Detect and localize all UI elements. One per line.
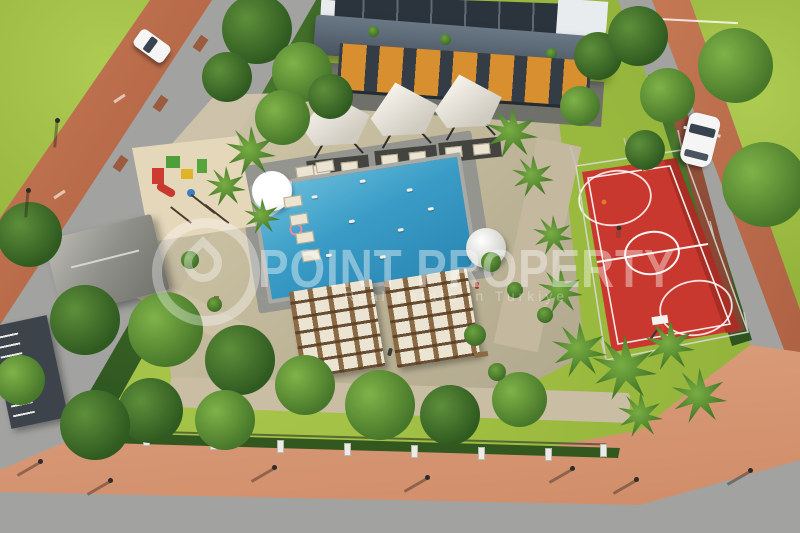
- swimmer: [428, 207, 434, 211]
- tree: [345, 370, 415, 440]
- basketball-ball: [602, 200, 607, 205]
- bush: [488, 363, 506, 381]
- fence-gate-post: [478, 447, 485, 460]
- swimmer: [398, 228, 404, 232]
- swimmer: [359, 179, 365, 183]
- car-mirror: [716, 134, 721, 138]
- playground-equipment-yellow: [181, 169, 193, 179]
- tree: [195, 390, 255, 450]
- watermark-subtitle: Real Estate in Turkiye: [344, 288, 568, 304]
- bush: [464, 324, 486, 346]
- tree: [60, 390, 130, 460]
- tree: [308, 74, 353, 119]
- render-image: POINT PROPERTY Real Estate in Turkiye: [0, 0, 800, 533]
- swimmer: [406, 188, 412, 192]
- tree: [205, 325, 275, 395]
- brick-wall-left: [113, 155, 129, 172]
- swimmer: [349, 219, 355, 223]
- playground-equipment-red: [152, 168, 164, 184]
- tree: [722, 142, 800, 227]
- lamp-head: [570, 466, 575, 471]
- tree: [50, 285, 120, 355]
- car-windshield: [142, 36, 158, 54]
- lamp-head: [26, 188, 31, 193]
- swimmer: [311, 195, 317, 199]
- playground-tower-green: [197, 159, 207, 173]
- lamp-head: [748, 468, 753, 473]
- tree: [420, 385, 480, 445]
- car-windshield: [689, 123, 716, 138]
- fence-gate-post: [600, 444, 607, 457]
- brick-wall-left: [193, 35, 209, 52]
- fence-gate-post: [277, 440, 284, 453]
- fence-gate-post: [545, 448, 552, 461]
- court-player-body: [616, 230, 621, 238]
- playground-equipment-green: [166, 156, 180, 168]
- lamp-head: [108, 478, 113, 483]
- lamp-head: [634, 477, 639, 482]
- tree: [625, 130, 665, 170]
- fence-gate-post: [344, 443, 351, 456]
- awning-planter: [440, 34, 451, 45]
- fence-gate-post: [411, 445, 418, 458]
- cabana-shade-canopy: [425, 70, 504, 131]
- tree: [0, 202, 62, 267]
- lamp-head: [38, 459, 43, 464]
- car-mirror: [683, 126, 688, 130]
- brick-wall-left: [153, 95, 169, 112]
- tree: [202, 52, 252, 102]
- court-player-head: [617, 226, 622, 231]
- car-rear-window: [684, 149, 709, 162]
- tree: [698, 28, 773, 103]
- fence-post: [570, 146, 576, 166]
- awning-planter: [368, 26, 379, 37]
- lamp-head: [425, 475, 430, 480]
- tree: [560, 86, 600, 126]
- tree: [640, 68, 695, 123]
- bush: [537, 307, 553, 323]
- tree: [608, 6, 668, 66]
- lamp-head: [272, 465, 277, 470]
- tree: [275, 355, 335, 415]
- cabana-lounger: [473, 143, 491, 156]
- tree: [255, 90, 310, 145]
- lamp-head: [55, 118, 60, 123]
